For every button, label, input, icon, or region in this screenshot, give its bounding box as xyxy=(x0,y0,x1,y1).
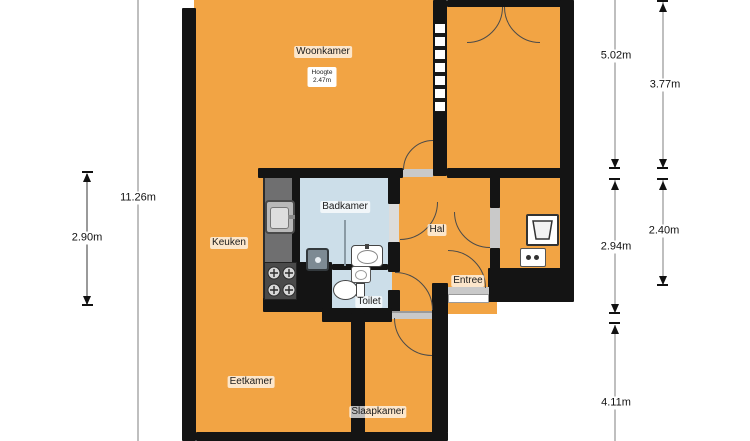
stove-icon xyxy=(264,262,297,300)
room-topright-fill xyxy=(445,5,563,175)
wall-outer-right xyxy=(560,0,574,270)
floorplan: Woonkamer Hoogte 2.47m Keuken Badkamer H… xyxy=(0,0,750,441)
entree-door-leaf xyxy=(448,294,489,303)
wall-woonkamer-bottom xyxy=(258,168,403,178)
threshold-badkamer-door xyxy=(389,204,399,242)
height-note-value: 2.47m xyxy=(312,77,333,85)
dimension-line-right-top-outer xyxy=(614,0,616,169)
room-label-entree: Entree xyxy=(451,275,484,287)
dim-tick xyxy=(609,178,620,180)
room-label-keuken: Keuken xyxy=(210,237,248,249)
arrow-up-icon xyxy=(83,173,91,182)
dim-tick xyxy=(657,284,668,286)
dim-tick xyxy=(657,178,668,180)
kitchen-sink-icon xyxy=(265,200,295,234)
dim-tick xyxy=(609,322,620,324)
dimension-line-total-height xyxy=(137,0,139,441)
wall-entree-right-block xyxy=(488,268,574,302)
threshold-entree-door xyxy=(448,287,489,294)
dim-tick xyxy=(609,167,620,169)
dimension-line-right-bottom xyxy=(614,325,616,441)
wall-washer-left-lower xyxy=(490,248,500,270)
threshold-woonkamer-door xyxy=(403,169,433,177)
height-note-title: Hoogte xyxy=(312,69,333,77)
dimension-label-right-mid-outer: 2.94m xyxy=(598,241,635,254)
wall-bottom xyxy=(196,432,448,441)
washing-machine-icon xyxy=(520,248,546,267)
dimension-label-right-mid-inner: 2.40m xyxy=(646,225,683,238)
wall-hal-top-right xyxy=(447,168,574,178)
room-label-eetkamer: Eetkamer xyxy=(228,376,275,388)
wall-washer-left-upper xyxy=(490,176,500,208)
room-label-badkamer: Badkamer xyxy=(320,201,370,213)
room-label-slaapkamer: Slaapkamer xyxy=(349,406,406,418)
dim-tick xyxy=(657,167,668,169)
arrow-up-icon xyxy=(611,181,619,190)
dim-tick xyxy=(82,304,93,306)
arrow-up-icon xyxy=(659,3,667,12)
dimension-label-right-top-inner: 3.77m xyxy=(647,79,684,92)
window-woonkamer-rightroom xyxy=(435,24,445,112)
threshold-washer-door xyxy=(490,208,500,248)
height-note: Hoogte 2.47m xyxy=(308,67,337,87)
wall-badkamer-right-lower xyxy=(388,242,400,272)
dim-tick xyxy=(657,0,668,2)
room-label-toilet: Toilet xyxy=(355,296,382,308)
dim-tick xyxy=(609,312,620,314)
room-label-hal: Hal xyxy=(427,224,446,236)
wall-badkamer-right-upper xyxy=(388,176,400,204)
wall-slaapkamer-right xyxy=(432,283,448,433)
washbasin-icon xyxy=(351,245,383,267)
dimension-label-right-top-outer: 5.02m xyxy=(598,50,635,63)
threshold-slaapkamer-door xyxy=(392,311,432,319)
dimension-label-left-inner: 2.90m xyxy=(69,232,106,245)
arrow-up-icon xyxy=(659,181,667,190)
arrow-up-icon xyxy=(611,325,619,334)
dimension-label-right-bottom: 4.11m xyxy=(598,397,634,410)
shower-icon xyxy=(306,248,329,271)
wall-topright-top xyxy=(447,0,574,7)
wall-outer-left xyxy=(182,8,196,441)
shower-screen-line xyxy=(344,220,346,266)
room-label-woonkamer: Woonkamer xyxy=(294,46,352,58)
boiler-icon xyxy=(526,214,559,246)
dimension-label-total-height: 11.26m xyxy=(117,192,159,205)
